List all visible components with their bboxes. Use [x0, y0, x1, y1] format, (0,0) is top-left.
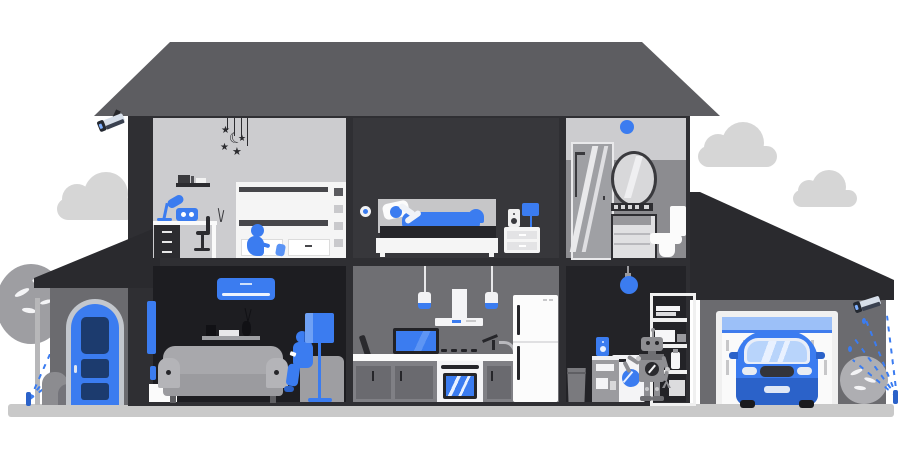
- car-mirror: [816, 352, 825, 359]
- ac-vent: [222, 293, 270, 296]
- robot-joint: [636, 356, 641, 361]
- car-windshield-glass: [747, 341, 807, 362]
- sofa-front: [163, 374, 283, 396]
- pendant-lamp: [485, 292, 498, 303]
- ladder-step: [334, 188, 343, 196]
- detergent-bottle: [671, 352, 680, 369]
- water-droplet-icon: [848, 346, 852, 352]
- bottle-cap: [673, 349, 678, 353]
- hood-light: [452, 320, 461, 323]
- smart-wall-sensor: [360, 206, 371, 217]
- sofa-arm-button: [166, 370, 171, 375]
- sofa-back: [163, 346, 283, 374]
- book-icon: [191, 176, 194, 183]
- drawer-handle: [162, 251, 172, 253]
- speaker-dot: [602, 341, 604, 343]
- bush-icon: [840, 356, 888, 404]
- smart-ceiling-light: [620, 120, 634, 134]
- chair-pole: [201, 235, 204, 248]
- car-mirror: [729, 352, 738, 359]
- cabinet-handle: [491, 371, 493, 381]
- door-handle: [74, 365, 77, 373]
- floor-lamp-shade: [305, 313, 334, 343]
- drawer-handle: [162, 241, 172, 243]
- speaker-dot: [189, 212, 194, 217]
- leaf-icon: [14, 287, 30, 299]
- cloud-icon: [698, 118, 778, 168]
- fridge-handle: [517, 305, 520, 335]
- sleeper-feet: [468, 209, 484, 223]
- towel-stack: [656, 312, 676, 316]
- wall-shelf: [176, 183, 210, 187]
- robot-joint: [655, 387, 659, 391]
- mobile-string: [247, 118, 248, 146]
- counter: [353, 354, 513, 361]
- speaker-dot: [511, 218, 517, 224]
- burner-knob: [451, 349, 457, 352]
- floor-lamp-base: [308, 398, 332, 402]
- bed-drawer: [288, 239, 330, 256]
- towel-stack: [656, 306, 680, 311]
- cabinet-top-drawer: [613, 216, 651, 225]
- cloud-bump: [62, 184, 92, 214]
- drawer-handle: [519, 234, 526, 236]
- car-plate: [764, 386, 790, 393]
- cloud-icon: [792, 168, 858, 208]
- toilet-bowl: [650, 233, 682, 244]
- car-headlight: [742, 367, 757, 375]
- speaker-dot: [600, 346, 606, 352]
- shower-door-handle: [603, 196, 605, 200]
- ladder-step: [334, 239, 343, 247]
- door-panel: [81, 383, 109, 400]
- star-icon: ★: [232, 146, 242, 157]
- drawer-handle: [305, 245, 312, 247]
- desk-lamp-base: [157, 218, 172, 221]
- fridge-vent: [543, 299, 547, 301]
- burner-knob: [441, 349, 447, 352]
- counter-tv-screen: [396, 331, 436, 351]
- smart-home-illustration: ★ ☾ ★ ★ ★: [0, 0, 902, 460]
- fridge-divider: [513, 341, 558, 343]
- robot-eye: [655, 341, 659, 345]
- vase-icon: [242, 321, 251, 336]
- bookshelf-board: [202, 336, 260, 340]
- door-panel: [81, 359, 109, 378]
- pendant-light: [620, 276, 638, 294]
- cabinet-line: [614, 243, 650, 245]
- bottle-icon: [610, 381, 616, 390]
- shower-stall: [571, 142, 614, 260]
- porch-roof: [34, 226, 160, 288]
- sprinkler-head: [893, 390, 898, 404]
- fridge-vent: [549, 299, 553, 301]
- tv-mount: [150, 366, 156, 380]
- shelf-board: [653, 318, 687, 322]
- trash-bin-lid-line: [567, 372, 586, 374]
- fridge-handle: [517, 346, 520, 380]
- garage-roof: [690, 192, 894, 300]
- pendant-lamp-tip: [418, 303, 431, 309]
- book-icon: [206, 325, 216, 336]
- leaf-icon: [854, 385, 866, 390]
- pendant-lamp-tip: [485, 303, 498, 309]
- car-wheel: [740, 400, 755, 408]
- woman-shoe: [284, 386, 294, 392]
- speaker-dot: [181, 212, 186, 217]
- box-icon: [596, 378, 608, 389]
- car-wheel: [799, 400, 814, 408]
- books-icon: [178, 175, 190, 183]
- wall-tv: [147, 301, 156, 354]
- robot-head: [641, 337, 663, 351]
- oven-handle: [441, 365, 479, 369]
- pendant-cord: [424, 266, 426, 292]
- chair-base: [194, 248, 210, 251]
- toilet-tank: [670, 206, 686, 236]
- air-conditioner: [217, 278, 275, 300]
- robot-eye: [646, 341, 650, 345]
- pendant-cord: [491, 266, 493, 292]
- box-icon: [669, 380, 685, 396]
- table-lamp-shade: [522, 203, 539, 216]
- robot-chest-band: [639, 354, 664, 360]
- child-head: [251, 224, 264, 237]
- toilet-base: [659, 244, 675, 257]
- book-stack-icon: [219, 330, 239, 336]
- desk-leg: [212, 225, 216, 258]
- drawer-handle: [519, 245, 526, 247]
- box-icon: [196, 178, 206, 183]
- oven-glass: [446, 376, 474, 396]
- sensor-dot: [363, 209, 368, 214]
- robot-foot: [652, 396, 664, 401]
- range-hood-duct: [452, 289, 467, 318]
- floor-lamp-pole: [318, 343, 321, 400]
- water-droplet-icon: [862, 318, 866, 324]
- ac-display: [240, 283, 252, 285]
- faucet-post: [492, 340, 495, 350]
- smart-speaker: [176, 208, 198, 221]
- sprinkler-head: [26, 392, 31, 406]
- bunk-rail-top: [239, 187, 328, 192]
- table-lamp-stem: [530, 216, 532, 227]
- side-cabinet: [592, 356, 619, 402]
- mirror: [611, 151, 657, 207]
- hood-controls: [466, 320, 476, 322]
- bed-leg: [489, 253, 494, 257]
- robot-joint: [645, 387, 649, 391]
- box-icon: [677, 334, 686, 342]
- cabinet-handle: [372, 371, 374, 381]
- cloud-bump: [798, 180, 820, 202]
- bed-base: [376, 238, 498, 253]
- robot-foot: [640, 396, 652, 401]
- main-roof: [94, 42, 720, 116]
- towel-shelf: [611, 203, 653, 211]
- door-panel: [81, 317, 109, 354]
- cloud-bump: [704, 134, 732, 162]
- star-icon: ★: [238, 135, 246, 144]
- car-headlight: [797, 367, 812, 375]
- towel-icon: [644, 205, 649, 209]
- towel-stack: [596, 364, 614, 371]
- towel-icon: [614, 205, 640, 209]
- drawer-handle: [162, 231, 172, 233]
- burner-knob: [461, 349, 467, 352]
- car-grille: [760, 366, 794, 377]
- cabinet-line: [614, 233, 650, 235]
- star-icon: ★: [220, 143, 229, 153]
- mirror-glint: [624, 156, 643, 198]
- shower-hose: [575, 155, 577, 197]
- ladder-step: [334, 205, 343, 213]
- sofa-leg: [170, 396, 176, 403]
- ladder-step: [334, 222, 343, 230]
- sofa-leg: [270, 396, 276, 403]
- burner-knob: [471, 349, 477, 352]
- speaker-dot: [513, 213, 515, 215]
- sofa-arm-button: [274, 370, 279, 375]
- cabinet-handle: [400, 371, 402, 381]
- bed-leg: [380, 253, 385, 257]
- cabinet-top: [592, 356, 619, 360]
- pendant-lamp: [418, 292, 431, 303]
